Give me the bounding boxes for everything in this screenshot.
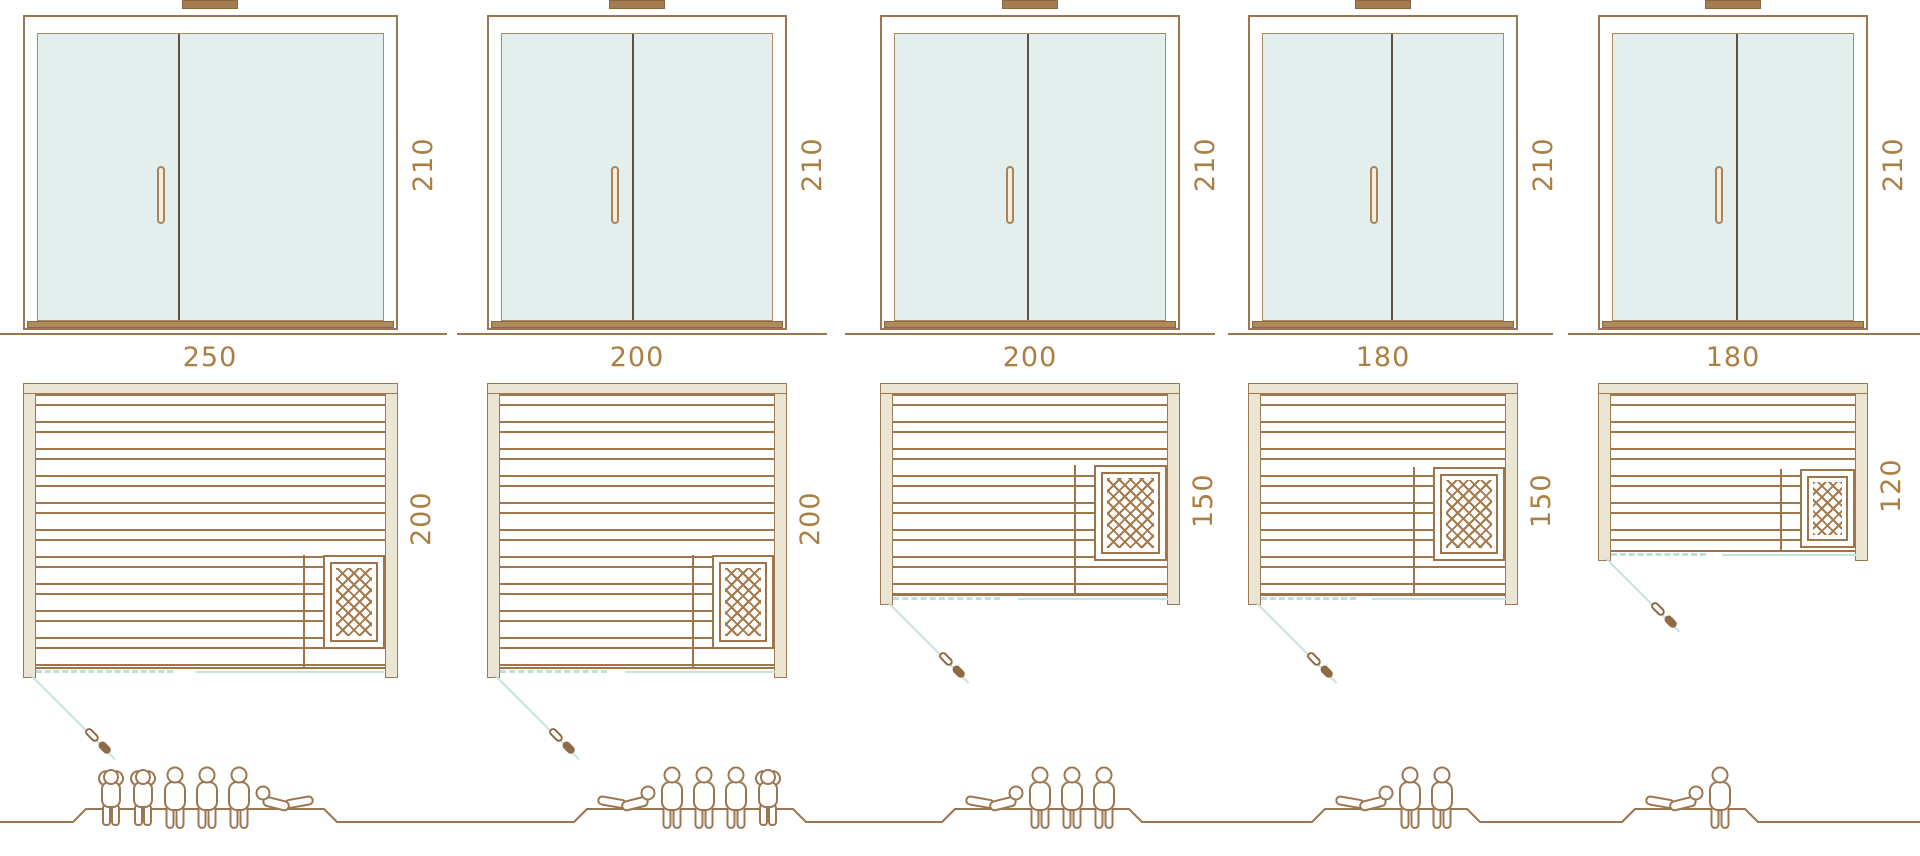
wall-post-right [1505,383,1518,605]
ground-line [457,333,827,335]
door-swing-handle [1648,599,1682,633]
swing-handle-knob-solid [1319,664,1335,680]
glass-front-dashed [500,670,607,673]
wall-post-right [774,383,787,678]
glass-front-line [625,671,775,673]
wall-top [1248,383,1518,394]
floor-plan [23,383,398,678]
door-handle [1370,166,1378,224]
person-sitting-icon [1710,768,1730,829]
swing-handle-knob-outline [1649,600,1666,617]
width-dimension-label: 250 [150,342,270,373]
heater-grate [1446,480,1492,548]
bench-edge [303,555,305,669]
ground-line [1228,333,1553,335]
glass-front-line [196,671,384,673]
person-sitting-icon [726,768,746,829]
plank-floor [1259,392,1507,596]
person-lying-icon [1646,787,1703,812]
person-sitting-icon [229,768,249,829]
depth-dimension-label: 200 [795,456,826,546]
glass-front-dashed [893,597,1000,600]
width-dimension-label: 200 [577,342,697,373]
wall-top [880,383,1180,394]
sauna-column: 210180120 [0,0,1920,856]
door-swing-handle [1304,649,1338,683]
sauna-column: 210180150 [0,0,1920,856]
person-standing-icon [131,770,155,825]
door-divider [1391,34,1393,320]
plank-floor [891,392,1169,596]
height-dimension-label: 210 [1878,112,1909,192]
door-sill [27,321,394,328]
person-sitting-icon [197,768,217,829]
heater-grate [336,568,372,636]
sauna-column: 210200200 [0,0,1920,856]
depth-dimension-label: 150 [1188,438,1219,528]
width-dimension-label: 200 [970,342,1090,373]
door-glass [37,33,384,321]
roof-vent [609,0,665,9]
bench-edge [1413,467,1415,596]
bench-edge [1780,469,1782,552]
door-sill [1602,321,1864,328]
glass-front-line [1018,598,1168,600]
door-handle [1006,166,1014,224]
door-swing-line [30,674,116,760]
glass-front-dashed [1611,553,1706,556]
door-glass [1612,33,1854,321]
person-sitting-icon [1400,768,1420,829]
width-dimension-label: 180 [1673,342,1793,373]
wall-post-left [1598,383,1611,561]
roof-vent [182,0,238,9]
roof-vent [1705,0,1761,9]
heater [712,555,774,649]
wall-top [23,383,398,394]
heater-grate [1107,478,1154,548]
wall-top [1598,383,1868,394]
heater [323,555,385,649]
heater-frame [719,562,767,642]
heater [1094,465,1167,561]
swing-handle-knob-solid [951,664,967,680]
person-lying-icon [966,787,1023,812]
door-elevation [1598,15,1868,330]
glass-front-dashed [1261,597,1356,600]
heater-grate [725,568,761,636]
door-elevation [880,15,1180,330]
floor-plan [487,383,787,678]
roof-vent [1002,0,1058,9]
person-sitting-icon [1030,768,1050,829]
plank-floor [498,392,776,669]
sauna-column: 210200150 [0,0,1920,856]
depth-dimension-label: 150 [1526,438,1557,528]
person-sitting-icon [1432,768,1452,829]
ground-line [845,333,1215,335]
door-swing-line [887,601,970,684]
bench-edge [1074,465,1076,596]
door-swing-line [1255,601,1338,684]
person-standing-icon [99,770,123,825]
bench-platform-outline [0,809,1920,822]
door-divider [632,34,634,320]
door-divider [178,34,180,320]
floor-plan [880,383,1180,605]
floor-plan [1598,383,1868,561]
height-dimension-label: 210 [797,112,828,192]
person-standing-icon [756,770,780,825]
width-dimension-label: 180 [1323,342,1443,373]
swing-handle-knob-outline [1305,650,1322,667]
heater-frame [330,562,378,642]
wall-post-left [880,383,893,605]
depth-dimension-label: 120 [1876,423,1907,513]
heater-frame [1440,474,1498,554]
wall-post-right [1855,383,1868,561]
door-handle [611,166,619,224]
height-dimension-label: 210 [1528,112,1559,192]
glass-front-line [1372,598,1507,600]
person-sitting-icon [1094,768,1114,829]
door-sill [884,321,1176,328]
person-sitting-icon [165,768,185,829]
swing-handle-knob-outline [547,726,564,743]
height-dimension-label: 210 [1190,112,1221,192]
floor-plan [1248,383,1518,605]
roof-vent [1355,0,1411,9]
door-swing-line [494,674,580,760]
door-glass [894,33,1166,321]
door-handle [1715,166,1723,224]
person-sitting-icon [1062,768,1082,829]
swing-handle-knob-outline [83,726,100,743]
depth-dimension-label: 200 [406,456,437,546]
wall-post-right [385,383,398,678]
door-swing-line [1605,557,1681,633]
door-divider [1027,34,1029,320]
glass-front-line [1722,554,1857,556]
wall-post-left [23,383,36,678]
door-elevation [1248,15,1518,330]
heater [1433,467,1505,561]
door-glass [501,33,773,321]
door-sill [491,321,783,328]
ground-line [1568,333,1920,335]
plank-floor [1609,392,1857,552]
heater-grate [1813,482,1842,535]
wall-post-left [487,383,500,678]
swing-handle-knob-solid [1663,614,1679,630]
wall-top [487,383,787,394]
door-elevation [487,15,787,330]
person-lying-icon [257,787,314,812]
door-sill [1252,321,1514,328]
door-elevation [23,15,398,330]
glass-front-dashed [36,670,173,673]
door-handle [157,166,165,224]
swing-handle-knob-outline [937,650,954,667]
plank-floor [34,392,387,669]
door-divider [1736,34,1738,320]
wall-post-right [1167,383,1180,605]
height-dimension-label: 210 [408,112,439,192]
heater [1800,469,1855,548]
sauna-size-diagram: 2102502002102002002102001502101801502101… [0,0,1920,856]
ground-line [0,333,447,335]
heater-frame [1807,476,1848,541]
sauna-column: 210250200 [0,0,1920,856]
person-sitting-icon [662,768,682,829]
wall-post-left [1248,383,1261,605]
person-lying-icon [1336,787,1393,812]
capacity-figures-strip [0,752,1920,847]
bench-edge [692,555,694,669]
person-sitting-icon [694,768,714,829]
door-swing-handle [936,649,970,683]
person-lying-icon [598,787,655,812]
door-glass [1262,33,1504,321]
heater-frame [1101,472,1160,554]
